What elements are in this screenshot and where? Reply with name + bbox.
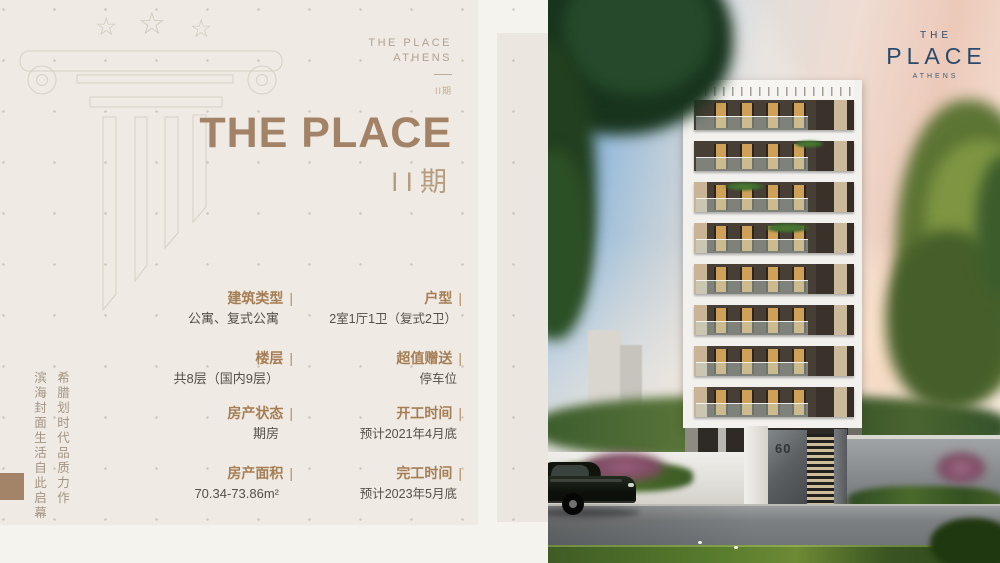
label-bar: |: [289, 350, 293, 366]
detail-item: 楼层| 共8层（国内9层）: [150, 349, 293, 404]
corner-reeds: [930, 518, 1000, 563]
parked-car: [548, 456, 644, 520]
detail-value: 停车位: [313, 370, 462, 388]
balcony-plant: [793, 140, 825, 148]
detail-value: 预计2021年4月底: [313, 425, 462, 443]
label-bar: |: [289, 290, 293, 306]
divider-line: [434, 74, 452, 75]
detail-value: 70.34-73.86m²: [150, 485, 293, 503]
building-floor: [694, 264, 854, 305]
vertical-slogan-line2: 滨海封面生活自此启幕: [27, 371, 50, 531]
building-rendering: 60 THE P: [548, 0, 1000, 563]
mini-logo-line1: THE PLACE: [368, 36, 452, 51]
label-bar: |: [458, 290, 462, 306]
butterfly: [734, 546, 738, 549]
page-title: THE PLACE: [199, 109, 452, 158]
building-floor: [694, 346, 854, 387]
logo-place: PLACE: [878, 43, 990, 70]
decor-brown-block: [0, 473, 24, 500]
detail-label: 户型: [424, 290, 452, 306]
label-bar: |: [458, 350, 462, 366]
star-icon: ☆: [138, 6, 166, 42]
street-number: 60: [775, 441, 791, 456]
brochure-page: ☆ ☆ ☆ THE PLACE ATHENS II期 THE PLACE II期…: [0, 0, 1000, 563]
star-icon: ☆: [95, 12, 117, 42]
label-bar: |: [458, 465, 462, 481]
gate-pillar: [834, 429, 847, 512]
detail-label: 开工时间: [396, 405, 452, 421]
vertical-slogan: 希腊划时代品质力作 滨海封面生活自此启幕: [27, 371, 73, 531]
brand-logo: THE PLACE ATHENS: [878, 30, 990, 80]
detail-value: 共8层（国内9层）: [150, 370, 293, 388]
label-bar: |: [289, 465, 293, 481]
detail-item: 房产状态| 期房: [150, 404, 293, 464]
detail-item: 超值赠送| 停车位: [313, 349, 462, 404]
detail-item: 建筑类型| 公寓、复式公寓: [150, 289, 293, 349]
star-icon: ☆: [190, 14, 212, 44]
logo-athens: ATHENS: [878, 73, 990, 80]
label-bar: |: [458, 405, 462, 421]
detail-value: 期房: [150, 425, 293, 443]
gate-slats: [807, 434, 834, 512]
property-details: 建筑类型| 公寓、复式公寓 户型| 2室1厅1卫（复式2卫） 楼层| 共8层（国…: [150, 289, 462, 503]
gate-panel: 60: [768, 430, 807, 512]
detail-value: 预计2023年5月底: [313, 485, 462, 503]
detail-item: 房产面积| 70.34-73.86m²: [150, 464, 293, 503]
detail-label: 完工时间: [396, 465, 452, 481]
detail-label: 超值赠送: [396, 350, 452, 366]
mini-logo-phase: II期: [368, 84, 452, 97]
detail-item: 开工时间| 预计2021年4月底: [313, 404, 462, 464]
butterfly: [698, 541, 702, 544]
building-floor: [694, 182, 854, 223]
apartment-building: [683, 80, 862, 428]
detail-item: 完工时间| 预计2023年5月底: [313, 464, 462, 503]
mini-logo-line2: ATHENS: [368, 51, 452, 66]
detail-label: 房产面积: [227, 465, 283, 481]
balcony-plant: [723, 182, 765, 191]
label-bar: |: [289, 405, 293, 421]
vertical-slogan-line1: 希腊划时代品质力作: [50, 371, 73, 531]
gate-pillar: [744, 426, 768, 512]
mini-logo: THE PLACE ATHENS II期: [368, 36, 452, 97]
building-floor: [694, 305, 854, 346]
detail-label: 建筑类型: [227, 290, 283, 306]
building-floor: [694, 100, 854, 141]
inset-panel: [497, 33, 548, 522]
detail-label: 楼层: [255, 350, 283, 366]
building-floor: [694, 387, 854, 428]
detail-label: 房产状态: [227, 405, 283, 421]
logo-the: THE: [878, 30, 990, 41]
detail-value: 公寓、复式公寓: [150, 310, 293, 328]
flowering-bush: [933, 450, 989, 486]
balcony-plant: [763, 223, 811, 233]
detail-value: 2室1厅1卫（复式2卫）: [313, 310, 462, 328]
building-floor: [694, 141, 854, 182]
detail-item: 户型| 2室1厅1卫（复式2卫）: [313, 289, 462, 349]
phase-label: II期: [391, 160, 454, 199]
